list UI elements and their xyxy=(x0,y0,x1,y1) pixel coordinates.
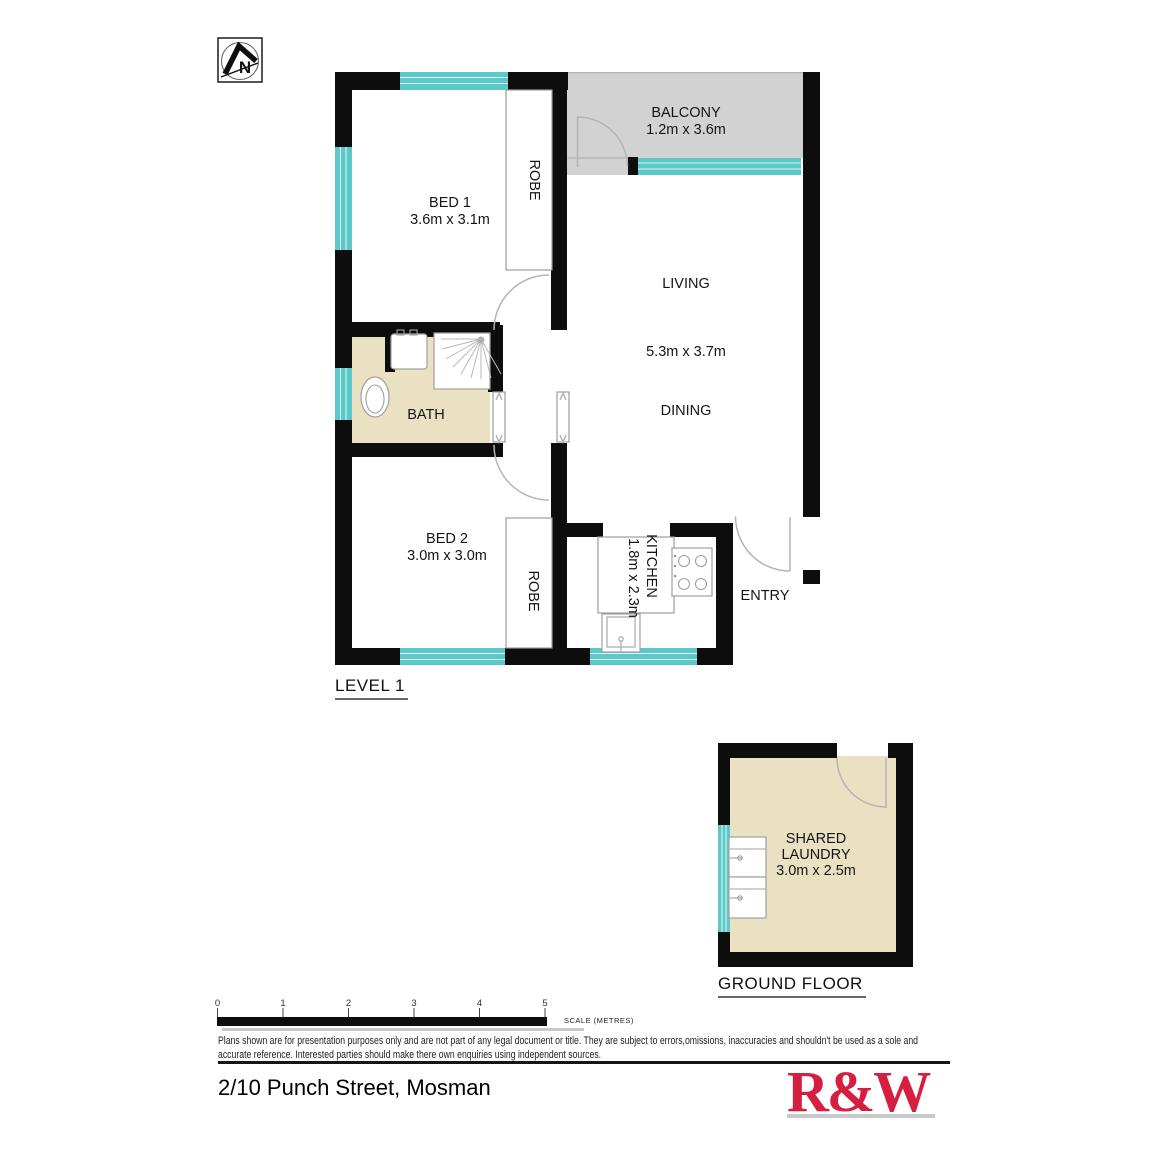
rw-logo: R&W xyxy=(787,1063,929,1121)
ground-floor-title: GROUND FLOOR xyxy=(718,974,866,998)
stove xyxy=(672,548,712,596)
shower-head xyxy=(478,337,485,344)
scale-tick-3: 3 xyxy=(411,998,416,1009)
scale-tick-2: 2 xyxy=(346,998,351,1009)
scale-tick-5: 5 xyxy=(542,998,547,1009)
laundry-tub xyxy=(729,837,766,877)
level1-title: LEVEL 1 xyxy=(335,676,408,700)
balcony-label: BALCONY xyxy=(651,105,721,121)
bed1-door xyxy=(494,275,549,330)
window xyxy=(400,648,505,665)
bath-door-leaf xyxy=(493,392,505,442)
window xyxy=(400,72,508,90)
scale-units-label: SCALE (METRES) xyxy=(564,1016,634,1025)
balcony-sliding-window xyxy=(638,158,801,175)
rw-logo-underline xyxy=(787,1114,935,1118)
window xyxy=(335,147,352,250)
disclaimer-line1: Plans shown are for presentation purpose… xyxy=(218,1035,918,1047)
bed2-label: BED 2 xyxy=(426,531,468,547)
hall-door-leaf xyxy=(557,392,569,442)
scale-bar: 0 1 2 3 4 5 SCALE (METRES) xyxy=(215,995,645,1039)
scale-bar-rule xyxy=(217,1017,547,1026)
bath-sink xyxy=(391,334,427,369)
scale-tick-0: 0 xyxy=(215,998,220,1009)
laundry-label-line2: LAUNDRY xyxy=(781,847,850,863)
kitchen-label: KITCHEN xyxy=(643,534,659,598)
north-letter: N xyxy=(239,58,251,77)
window xyxy=(718,825,730,932)
balcony-dims: 1.2m x 3.6m xyxy=(646,122,726,138)
toilet xyxy=(361,377,389,417)
living-label: LIVING xyxy=(662,276,710,292)
north-indicator: N xyxy=(218,38,262,82)
kitchen-dims: 1.8m x 2.3m xyxy=(625,538,641,618)
bed1-dims: 3.6m x 3.1m xyxy=(410,212,490,228)
living-dims: 5.3m x 3.7m xyxy=(646,344,726,360)
level1-floor-fills xyxy=(350,72,803,445)
bed2-dims: 3.0m x 3.0m xyxy=(407,548,487,564)
floor-plan-graphic: N xyxy=(0,0,1150,1150)
laundry-dims: 3.0m x 2.5m xyxy=(776,863,856,879)
robe2-label: ROBE xyxy=(525,570,541,611)
window xyxy=(335,368,352,420)
bath-label: BATH xyxy=(407,407,445,423)
robe1-label: ROBE xyxy=(526,159,542,200)
ground-floor-plan: SHARED LAUNDRY 3.0m x 2.5m xyxy=(718,743,913,967)
scale-tick-4: 4 xyxy=(477,998,482,1009)
floorplan-page: N xyxy=(0,0,1150,1150)
scale-tick-1: 1 xyxy=(280,998,285,1009)
dining-label: DINING xyxy=(661,403,712,419)
entry-label: ENTRY xyxy=(741,588,790,604)
property-address: 2/10 Punch Street, Mosman xyxy=(218,1075,491,1101)
laundry-label-line1: SHARED xyxy=(786,831,846,847)
disclaimer-line2: accurate reference. Interested parties s… xyxy=(218,1049,601,1061)
bed1-label: BED 1 xyxy=(429,195,471,211)
